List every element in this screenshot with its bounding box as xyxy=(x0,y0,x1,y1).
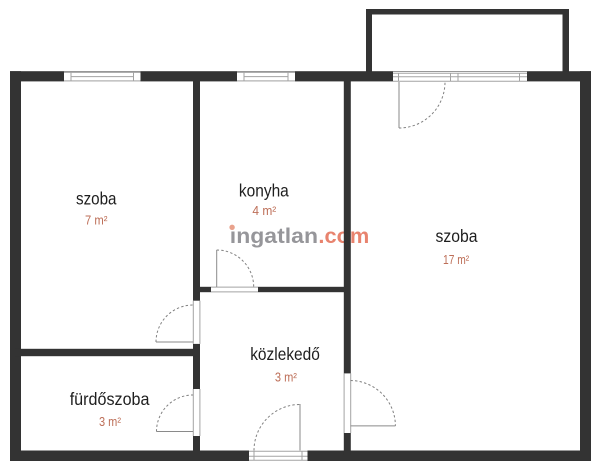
svg-text:szoba: szoba xyxy=(436,226,478,246)
svg-text:fürdőszoba: fürdőszoba xyxy=(70,389,150,409)
svg-text:4 m²: 4 m² xyxy=(252,204,276,218)
svg-text:közlekedő: közlekedő xyxy=(250,344,320,364)
svg-text:3 m²: 3 m² xyxy=(275,370,297,384)
svg-text:ıngatlan: ıngatlan xyxy=(230,224,318,248)
svg-text:konyha: konyha xyxy=(239,181,289,201)
svg-text:3 m²: 3 m² xyxy=(99,415,121,429)
svg-text:szoba: szoba xyxy=(76,189,117,209)
svg-text:17 m²: 17 m² xyxy=(443,253,469,267)
svg-text:7 m²: 7 m² xyxy=(85,214,108,228)
